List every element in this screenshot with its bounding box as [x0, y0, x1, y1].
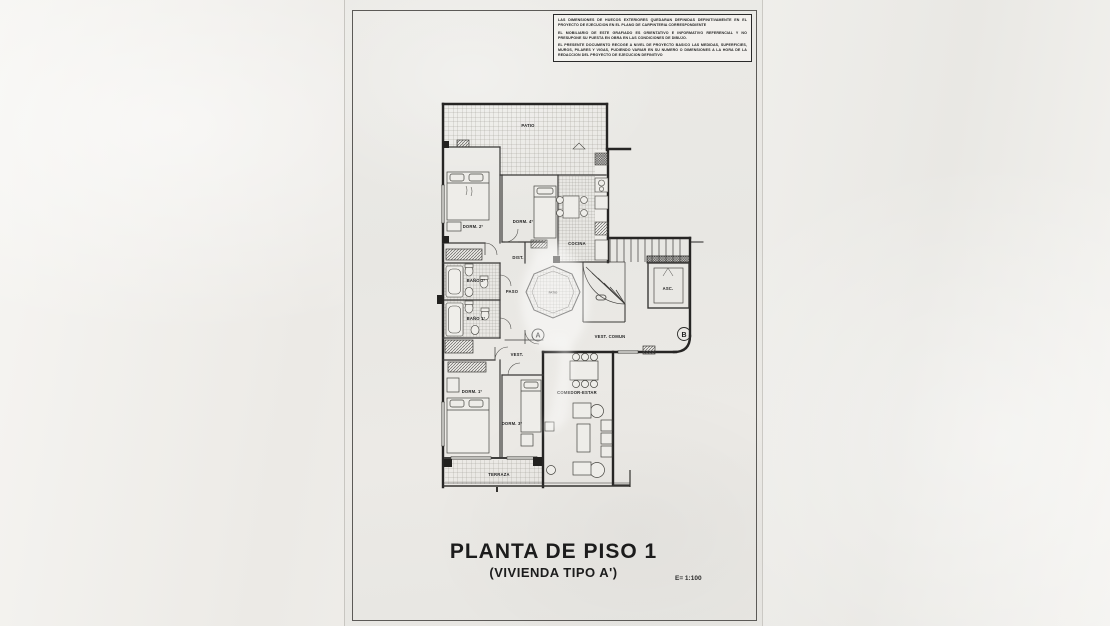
marker-b-label: B	[681, 332, 686, 339]
scanned-page: LAS DIMENSIONES DE HUECOS EXTERIORES QUE…	[0, 0, 1110, 626]
patio-tiles-lower	[500, 147, 606, 175]
label-dorm2: DORM. 2º	[463, 224, 484, 229]
label-dorm4: DORM. 4º	[513, 219, 534, 224]
label-paso: PASO	[506, 289, 519, 294]
title-block: PLANTA DE PISO 1 (VIVIENDA TIPO A')	[345, 540, 762, 580]
label-banyo1: BAÑO 1º	[467, 316, 486, 321]
drawing-sheet: LAS DIMENSIONES DE HUECOS EXTERIORES QUE…	[345, 0, 762, 626]
scale-label: E= 1:100	[675, 575, 702, 582]
elevator	[647, 256, 690, 308]
label-dorm1: DORM. 1º	[462, 389, 483, 394]
label-cocina: COCINA	[568, 241, 586, 246]
label-vest-comun: VEST. COMUN	[595, 334, 626, 339]
label-banyo2: BAÑO 2º	[467, 278, 486, 283]
floor-plan-drawing: A B PATIO DORM. 2º DORM. 4º COCINA DIST.…	[345, 0, 762, 626]
label-dist: DIST.	[512, 255, 523, 260]
label-dorm3: DORM. 3º	[502, 421, 523, 426]
label-asc: ASC.	[663, 286, 674, 291]
label-vest: VEST.	[511, 352, 524, 357]
label-terraza: TERRAZA	[488, 472, 509, 477]
plan-title: PLANTA DE PISO 1	[345, 540, 762, 564]
label-patio: PATIO	[521, 123, 535, 128]
